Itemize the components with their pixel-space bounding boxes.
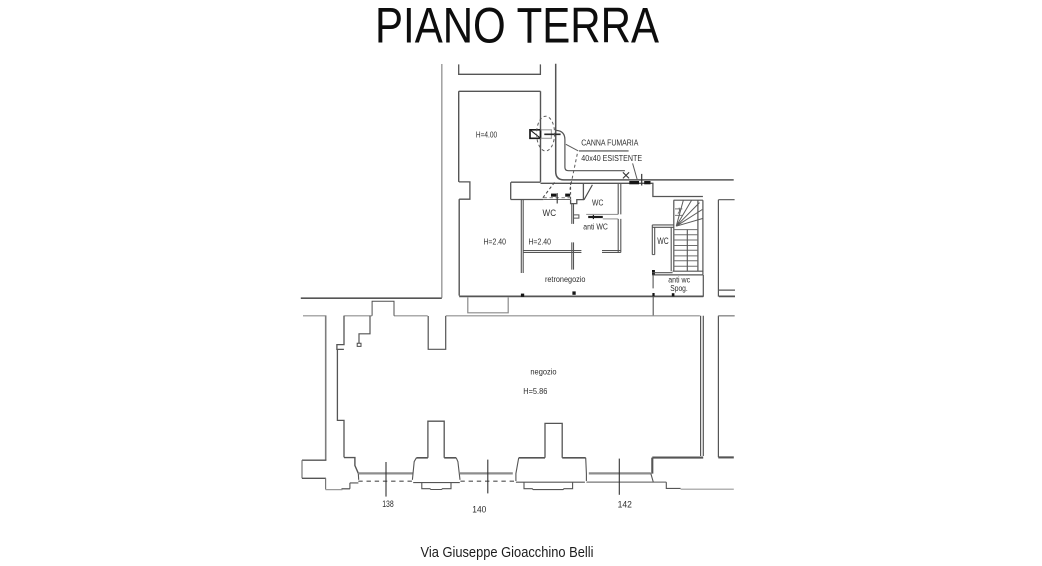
svg-text:140: 140 [472,504,486,514]
svg-text:CANNA FUMARIA: CANNA FUMARIA [581,139,639,148]
svg-text:Spog.: Spog. [670,284,688,293]
svg-text:WC: WC [657,236,669,246]
svg-text:retronegozio: retronegozio [545,274,586,284]
svg-text:PIANO TERRA: PIANO TERRA [375,0,659,54]
svg-text:H=2.40: H=2.40 [528,236,551,246]
svg-text:Via Giuseppe Gioacchino Belli: Via Giuseppe Gioacchino Belli [421,545,594,561]
svg-text:negozio: negozio [530,367,557,377]
svg-text:40x40 ESISTENTE: 40x40 ESISTENTE [581,154,642,163]
svg-text:WC: WC [592,197,603,207]
svg-text:H=5.86: H=5.86 [523,386,547,396]
svg-text:142: 142 [618,499,632,509]
svg-text:H=2.40: H=2.40 [483,236,506,246]
svg-text:anti WC: anti WC [583,222,608,231]
svg-text:H=4.00: H=4.00 [476,129,497,139]
svg-text:138: 138 [382,499,394,509]
svg-text:WC: WC [543,208,557,218]
